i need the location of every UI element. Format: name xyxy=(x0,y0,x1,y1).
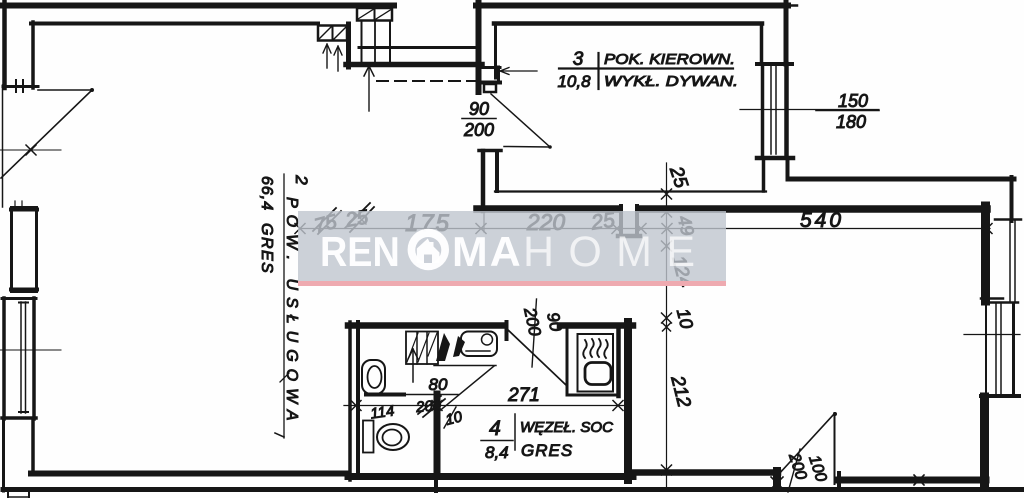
svg-text:WĘZEŁ. SOC: WĘZEŁ. SOC xyxy=(520,420,614,436)
svg-text:2: 2 xyxy=(292,174,311,185)
svg-text:66,4: 66,4 xyxy=(258,176,275,211)
svg-text:180: 180 xyxy=(836,112,866,132)
svg-text:3: 3 xyxy=(573,49,584,70)
svg-text:90: 90 xyxy=(469,99,489,119)
svg-text:10,8: 10,8 xyxy=(557,72,591,91)
svg-text:271: 271 xyxy=(507,385,540,406)
svg-text:10: 10 xyxy=(444,408,465,429)
svg-text:540: 540 xyxy=(800,209,844,232)
svg-text:100: 100 xyxy=(805,453,829,484)
svg-text:REN: REN xyxy=(320,229,400,275)
svg-text:25: 25 xyxy=(665,163,692,191)
svg-text:150: 150 xyxy=(838,91,868,111)
svg-text:200: 200 xyxy=(785,450,810,482)
svg-text:MA: MA xyxy=(452,228,523,275)
svg-text:WYKŁ. DYWAN.: WYKŁ. DYWAN. xyxy=(604,73,738,90)
svg-text:90: 90 xyxy=(543,311,566,334)
svg-text:200: 200 xyxy=(463,120,494,140)
svg-text:200: 200 xyxy=(520,305,545,338)
svg-text:10: 10 xyxy=(673,306,697,330)
svg-text:212: 212 xyxy=(666,373,694,410)
svg-text:POW. USŁUGOWA: POW. USŁUGOWA xyxy=(283,197,300,428)
svg-text:POK. KIEROWN.: POK. KIEROWN. xyxy=(604,51,735,68)
svg-text:8,4: 8,4 xyxy=(485,443,509,462)
svg-text:GRES: GRES xyxy=(258,223,275,274)
svg-text:4: 4 xyxy=(489,417,501,440)
svg-text:GRES: GRES xyxy=(521,441,573,460)
svg-text:80: 80 xyxy=(429,375,448,394)
